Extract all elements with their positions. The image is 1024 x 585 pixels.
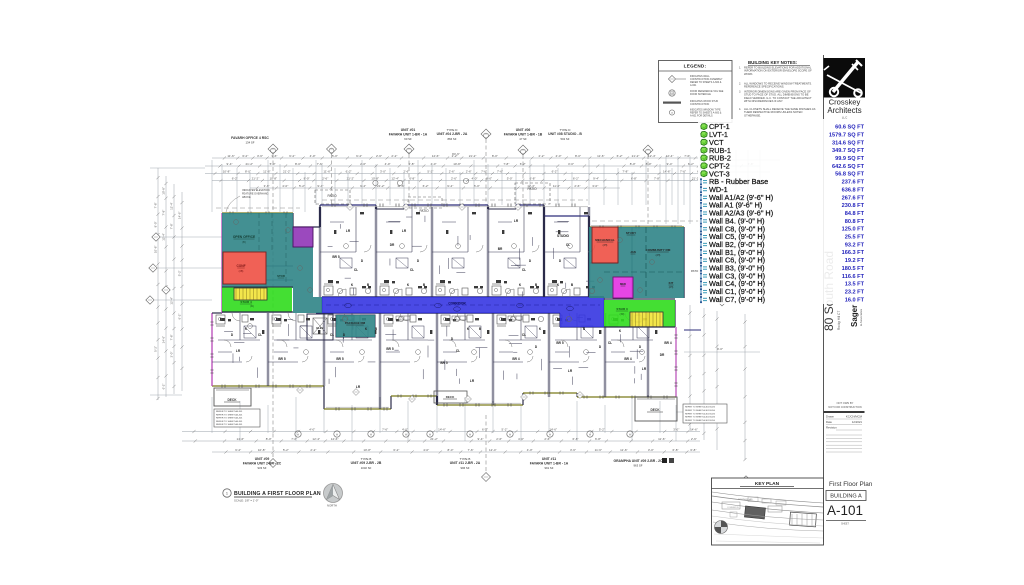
svg-text:3'-6": 3'-6" [257, 154, 263, 158]
svg-text:6'-8": 6'-8" [409, 162, 415, 166]
svg-text:FAVARH OFFICE 4 RSC: FAVARH OFFICE 4 RSC [231, 136, 269, 140]
svg-text:6'-2": 6'-2" [289, 154, 295, 158]
svg-text:6'-8": 6'-8" [572, 437, 578, 441]
svg-text:INFORMATION ON EXTERIOR ENVELO: INFORMATION ON EXTERIOR ENVELOPE SCOPE O… [744, 69, 812, 73]
svg-text:21'-2": 21'-2" [252, 176, 260, 180]
svg-text:7'-6": 7'-6" [684, 154, 690, 158]
svg-text:21'-2": 21'-2" [245, 162, 253, 166]
svg-text:4'-0": 4'-0" [423, 448, 429, 452]
svg-text:A-101: A-101 [827, 503, 863, 518]
svg-text:5'-2": 5'-2" [154, 346, 158, 352]
svg-text:SHEET: SHEET [841, 523, 850, 526]
svg-text:7'-6": 7'-6" [291, 437, 297, 441]
svg-text:3'-0": 3'-0" [170, 351, 174, 357]
svg-text:DECK: DECK [227, 398, 237, 402]
svg-text:7'-8": 7'-8" [503, 162, 509, 166]
svg-text:7'-8": 7'-8" [162, 210, 166, 216]
svg-text:8'-0": 8'-0" [295, 162, 301, 166]
svg-text:REFER TO SHEET A4-301: REFER TO SHEET A4-301 [216, 417, 243, 420]
svg-text:14'-6": 14'-6" [178, 212, 182, 220]
svg-text:CL: CL [410, 268, 414, 272]
svg-text:9'-4": 9'-4" [447, 184, 453, 188]
svg-text:5'-0": 5'-0" [332, 154, 338, 158]
svg-text:2'-2": 2'-2" [538, 154, 544, 158]
svg-text:47 SF: 47 SF [519, 137, 527, 141]
svg-text:NOT OWN BY: NOT OWN BY [837, 401, 854, 405]
svg-text:STAIR 3: STAIR 3 [616, 307, 628, 311]
svg-text:11'-6": 11'-6" [597, 154, 604, 158]
svg-text:MED: MED [620, 282, 626, 286]
svg-text:11'-6": 11'-6" [658, 437, 665, 441]
svg-text:CONSTRUCTION: CONSTRUCTION [690, 103, 710, 106]
svg-text:FAVARH UNIT 1-BR - 1A: FAVARH UNIT 1-BR - 1A [530, 462, 569, 466]
svg-text:FAVARH UNIT 2-BR - 2C: FAVARH UNIT 2-BR - 2C [243, 462, 282, 466]
svg-text:FAVARH UNIT 1-BR - 1B: FAVARH UNIT 1-BR - 1B [504, 133, 543, 137]
svg-text:84'-6": 84'-6" [452, 152, 460, 156]
svg-text:9'-4": 9'-4" [360, 184, 366, 188]
svg-text:12'-4": 12'-4" [170, 202, 174, 210]
svg-text:12'-4": 12'-4" [391, 176, 399, 180]
svg-text:UNIT #08 STUDIO - B: UNIT #08 STUDIO - B [548, 132, 582, 136]
svg-text:866 SF: 866 SF [447, 137, 456, 141]
svg-text:8'-0": 8'-0" [448, 448, 454, 452]
svg-text:2'-6": 2'-6" [574, 184, 580, 188]
svg-text:2'-6": 2'-6" [449, 169, 455, 173]
svg-text:237.6 FT: 237.6 FT [842, 180, 865, 186]
svg-text:UNIT #01: UNIT #01 [401, 128, 416, 132]
svg-text:93.2 FT: 93.2 FT [845, 242, 865, 248]
svg-text:LLC: LLC [842, 116, 848, 120]
svg-text:3'-0": 3'-0" [568, 162, 574, 166]
svg-text:8'-0": 8'-0" [266, 437, 272, 441]
svg-text:3'-0": 3'-0" [380, 169, 386, 173]
svg-text:56.8 SQ FT: 56.8 SQ FT [835, 172, 864, 178]
svg-text:2'-6": 2'-6" [403, 169, 409, 173]
svg-text:DR: DR [390, 243, 395, 247]
svg-text:7'-8": 7'-8" [654, 176, 660, 180]
svg-text:Architects: Architects [827, 106, 861, 115]
svg-text:60.6 SQ FT: 60.6 SQ FT [835, 125, 864, 131]
svg-text:BR 4: BR 4 [624, 357, 631, 361]
svg-text:UNIT #09: UNIT #09 [255, 457, 270, 461]
svg-text:UNIT #06: UNIT #06 [516, 128, 531, 132]
svg-text:DOOR SCHEDULE: DOOR SCHEDULE [690, 93, 711, 96]
svg-text:4'-0": 4'-0" [310, 154, 316, 158]
svg-text:OPEN OFFICE: OPEN OFFICE [233, 235, 256, 239]
svg-text:1.: 1. [739, 67, 741, 70]
svg-text:(3D): (3D) [620, 313, 625, 316]
svg-text:A-601 FOR DETAILS: A-601 FOR DETAILS [690, 115, 713, 118]
svg-text:4.: 4. [739, 108, 741, 111]
svg-text:LR: LR [402, 229, 407, 233]
svg-text:6'-2": 6'-2" [520, 162, 526, 166]
svg-text:Wall C7, (9'-0" H): Wall C7, (9'-0" H) [709, 295, 765, 304]
svg-text:STUDY: STUDY [626, 231, 636, 235]
svg-text:12'-4": 12'-4" [489, 448, 497, 452]
svg-text:180.5 FT: 180.5 FT [842, 266, 865, 272]
svg-text:5'-2": 5'-2" [599, 428, 605, 432]
svg-text:LR: LR [514, 219, 519, 223]
svg-text:6'-2": 6'-2" [482, 428, 488, 432]
svg-text:NOT FOR CONSTRUCTION: NOT FOR CONSTRUCTION [828, 405, 861, 409]
svg-text:REFER TO SHEET A-301 BLDG: REFER TO SHEET A-301 BLDG [685, 406, 716, 409]
svg-text:8'-0": 8'-0" [630, 162, 636, 166]
svg-text:OTHERWISE.: OTHERWISE. [744, 113, 761, 117]
svg-text:BR 5: BR 5 [440, 361, 447, 365]
svg-text:(2H): (2H) [656, 254, 661, 257]
svg-text:8'-0": 8'-0" [154, 221, 158, 227]
svg-text:A: A [509, 432, 511, 436]
svg-text:21'-2": 21'-2" [430, 437, 438, 441]
svg-text:UNIT #11: UNIT #11 [542, 457, 556, 461]
svg-text:6'-8": 6'-8" [530, 176, 536, 180]
svg-text:PATIO: PATIO [419, 209, 429, 213]
svg-text:2'-6": 2'-6" [360, 162, 366, 166]
svg-text:6'-2": 6'-2" [235, 448, 241, 452]
svg-text:21'-2": 21'-2" [469, 154, 477, 158]
svg-text:7'-6": 7'-6" [382, 428, 388, 432]
svg-text:7'-6": 7'-6" [468, 448, 474, 452]
svg-text:6'-2": 6'-2" [552, 169, 558, 173]
svg-text:A-601: A-601 [690, 84, 697, 87]
svg-text:KIT: KIT [669, 281, 674, 285]
svg-text:DR: DR [660, 353, 665, 357]
svg-text:2'-6": 2'-6" [376, 154, 382, 158]
svg-text:3'-6": 3'-6" [264, 184, 270, 188]
svg-text:8'-0": 8'-0" [646, 162, 652, 166]
svg-text:CL: CL [608, 341, 612, 345]
svg-text:21'-2": 21'-2" [283, 169, 291, 173]
svg-text:DECK: DECK [650, 408, 660, 412]
svg-text:996 SF: 996 SF [460, 466, 469, 470]
svg-text:5'-2": 5'-2" [502, 428, 508, 432]
svg-text:7'-8": 7'-8" [170, 334, 174, 340]
svg-text:COMMERCE: COMMERCE [727, 507, 740, 509]
svg-text:7'-8": 7'-8" [622, 169, 628, 173]
svg-text:267.6 FT: 267.6 FT [842, 195, 865, 201]
svg-text:CL: CL [522, 333, 526, 337]
svg-text:4'-0": 4'-0" [431, 162, 437, 166]
svg-text:(2B): (2B) [239, 270, 244, 273]
svg-text:5'-0": 5'-0" [507, 176, 513, 180]
svg-text:SOUTH ROAD: SOUTH ROAD [738, 498, 753, 501]
svg-text:99.9 SQ FT: 99.9 SQ FT [835, 156, 864, 162]
svg-text:10'-8": 10'-8" [223, 169, 231, 173]
svg-text:2'-6": 2'-6" [691, 437, 697, 441]
svg-text:LR: LR [356, 385, 361, 389]
svg-text:11'-6": 11'-6" [553, 184, 560, 188]
svg-text:6'-2": 6'-2" [617, 154, 623, 158]
svg-text:6'-8": 6'-8" [673, 448, 679, 452]
svg-text:BUILDING A: BUILDING A [830, 494, 862, 500]
svg-text:10'-8": 10'-8" [371, 176, 379, 180]
svg-text:BR 4: BR 4 [512, 357, 519, 361]
svg-text:CL: CL [456, 349, 460, 353]
svg-text:14'-6": 14'-6" [438, 428, 446, 432]
svg-text:14'-6": 14'-6" [162, 336, 166, 344]
svg-text:2'-6": 2'-6" [544, 437, 550, 441]
svg-text:963 SF: 963 SF [633, 464, 642, 468]
svg-text:LEGEND:: LEGEND: [684, 64, 707, 69]
svg-text:23.2 FT: 23.2 FT [845, 289, 865, 295]
svg-text:11'-6": 11'-6" [595, 448, 602, 452]
svg-text:4'-0": 4'-0" [282, 184, 288, 188]
svg-text:3'-0": 3'-0" [673, 428, 679, 432]
svg-text:642.6 SQ FT: 642.6 SQ FT [832, 164, 865, 170]
svg-text:PATIO: PATIO [327, 194, 337, 198]
svg-text:7'-8": 7'-8" [170, 223, 174, 229]
svg-text:(B): (B) [242, 241, 246, 244]
svg-text:(31): (31) [250, 306, 254, 308]
svg-text:8'-0": 8'-0" [492, 154, 498, 158]
svg-text:1: 1 [226, 492, 228, 496]
svg-text:Sager: Sager [850, 305, 859, 327]
svg-text:16.0 FT: 16.0 FT [845, 297, 865, 303]
svg-text:6'-2": 6'-2" [178, 313, 182, 319]
svg-text:11'-6": 11'-6" [263, 169, 270, 173]
svg-text:MECHANICAL: MECHANICAL [595, 238, 615, 242]
svg-text:7'-6": 7'-6" [680, 169, 686, 173]
svg-text:21'-2": 21'-2" [377, 184, 385, 188]
svg-text:12/2021: 12/2021 [852, 420, 863, 424]
svg-text:4'-0": 4'-0" [309, 428, 315, 432]
svg-text:JAN: JAN [630, 250, 636, 254]
svg-text:3.: 3. [739, 91, 741, 94]
svg-text:10'-8": 10'-8" [162, 187, 166, 195]
svg-text:BR 4: BR 4 [664, 341, 671, 345]
svg-text:REFERENCE SPECIFICATIONS.: REFERENCE SPECIFICATIONS. [744, 85, 785, 89]
svg-text:502 SF: 502 SF [560, 137, 569, 141]
svg-text:Drawn: Drawn [826, 415, 835, 419]
svg-text:Revision: Revision [826, 426, 837, 430]
svg-text:CONF: CONF [236, 264, 245, 268]
svg-text:12'-4": 12'-4" [648, 154, 656, 158]
svg-text:UNIT #11 2-BR - 2A: UNIT #11 2-BR - 2A [450, 461, 481, 465]
svg-text:REFER TO SHEET A4-301: REFER TO SHEET A4-301 [216, 420, 243, 423]
svg-text:4'-0": 4'-0" [472, 176, 478, 180]
svg-text:WITH DISCREPANCIES IF ANY.: WITH DISCREPANCIES IF ANY. [744, 99, 783, 103]
svg-text:11'-6": 11'-6" [227, 154, 234, 158]
svg-text:14'-6": 14'-6" [663, 169, 671, 173]
svg-text:12'-4": 12'-4" [312, 437, 320, 441]
svg-text:134 SF: 134 SF [245, 141, 254, 145]
svg-text:8'-0": 8'-0" [486, 176, 492, 180]
svg-text:LR: LR [568, 369, 573, 373]
svg-text:A: A [405, 432, 407, 436]
svg-text:REFER TO SHEET A4-301: REFER TO SHEET A4-301 [216, 410, 243, 413]
svg-text:(2H): (2H) [669, 287, 674, 289]
svg-text:2'-6": 2'-6" [466, 169, 472, 173]
svg-text:5'-2": 5'-2" [427, 169, 433, 173]
svg-text:BR 5: BR 5 [336, 357, 343, 361]
svg-text:2'-2": 2'-2" [310, 448, 316, 452]
svg-text:DECK: DECK [446, 395, 455, 399]
svg-text:3'-6": 3'-6" [271, 154, 277, 158]
svg-text:& Associates: & Associates [859, 308, 863, 326]
svg-text:UNIT #09 2-BR - 2B: UNIT #09 2-BR - 2B [351, 461, 382, 465]
svg-text:A: A [629, 432, 631, 436]
svg-text:A: A [370, 432, 372, 436]
svg-text:11'-6": 11'-6" [620, 448, 627, 452]
svg-text:11'-6": 11'-6" [397, 184, 404, 188]
svg-text:2'-6": 2'-6" [322, 176, 328, 180]
svg-text:1032 SF: 1032 SF [361, 466, 372, 470]
svg-text:933 SF: 933 SF [257, 466, 266, 470]
svg-text:14'-6": 14'-6" [331, 437, 339, 441]
svg-text:STOR: STOR [277, 274, 285, 278]
svg-text:10'-8": 10'-8" [258, 448, 266, 452]
svg-text:12'-4": 12'-4" [170, 297, 174, 305]
svg-text:6'-2": 6'-2" [688, 162, 694, 166]
svg-text:6'-8": 6'-8" [631, 176, 637, 180]
svg-text:3'-6": 3'-6" [570, 448, 576, 452]
svg-text:5'-2": 5'-2" [283, 448, 289, 452]
svg-text:STAIR 4: STAIR 4 [240, 300, 252, 304]
svg-text:6'-2": 6'-2" [346, 169, 352, 173]
svg-text:230.8 FT: 230.8 FT [842, 203, 865, 209]
svg-text:REFER TO SHEET A-301 BLDG: REFER TO SHEET A-301 BLDG [685, 412, 716, 415]
svg-text:LR: LR [642, 367, 647, 371]
svg-text:10'-8": 10'-8" [154, 245, 158, 253]
svg-text:KC/CN/MCM: KC/CN/MCM [846, 415, 863, 419]
svg-text:6'-2": 6'-2" [162, 383, 166, 389]
svg-text:10'-8": 10'-8" [453, 162, 461, 166]
svg-text:4'-0": 4'-0" [527, 448, 533, 452]
svg-text:NORTH: NORTH [327, 504, 337, 508]
svg-text:6'-8": 6'-8" [595, 437, 601, 441]
svg-text:84.8 FT: 84.8 FT [845, 211, 865, 217]
svg-text:A: A [429, 432, 431, 436]
svg-text:21'-2": 21'-2" [347, 176, 355, 180]
svg-text:ABOVE: ABOVE [242, 196, 251, 199]
svg-text:ELEV: ELEV [316, 326, 323, 330]
svg-text:12'-4": 12'-4" [666, 154, 674, 158]
svg-text:BR 5: BR 5 [332, 255, 339, 259]
svg-text:9'-4": 9'-4" [477, 437, 483, 441]
svg-text:First Floor Plan: First Floor Plan [829, 481, 873, 488]
svg-text:60 SF: 60 SF [404, 137, 412, 141]
svg-text:LR: LR [236, 349, 241, 353]
svg-text:BR 5: BR 5 [386, 347, 393, 351]
svg-text:1579.7 SQ FT: 1579.7 SQ FT [829, 132, 865, 138]
svg-text:6'-2": 6'-2" [393, 448, 399, 452]
svg-text:7'-8": 7'-8" [154, 202, 158, 208]
svg-text:4'-0": 4'-0" [556, 154, 562, 158]
svg-text:13.5 FT: 13.5 FT [845, 282, 865, 288]
svg-text:A: A [549, 432, 551, 436]
svg-text:9'-4": 9'-4" [667, 162, 673, 166]
svg-text:REFER TO SHEET A-301 BLDG: REFER TO SHEET A-301 BLDG [685, 419, 716, 422]
svg-text:SCALE: 1/8" = 1'-0": SCALE: 1/8" = 1'-0" [234, 499, 258, 503]
svg-text:9'-4": 9'-4" [226, 162, 232, 166]
svg-text:STUDIO: STUDIO [557, 234, 570, 238]
svg-text:3'-0": 3'-0" [592, 184, 598, 188]
svg-text:14'-6": 14'-6" [690, 428, 698, 432]
svg-text:2.: 2. [739, 83, 741, 86]
svg-text:125.0 FT: 125.0 FT [842, 227, 865, 233]
svg-text:19.2 FT: 19.2 FT [845, 258, 865, 264]
svg-text:6'-8": 6'-8" [690, 448, 696, 452]
svg-text:4'-0": 4'-0" [385, 162, 391, 166]
svg-text:6'-8": 6'-8" [409, 176, 415, 180]
svg-text:FAVARH UNIT 1-BR - 1A: FAVARH UNIT 1-BR - 1A [389, 133, 428, 137]
svg-text:UNIT #04 2-BR - 2A: UNIT #04 2-BR - 2A [437, 132, 468, 136]
svg-text:8'-0": 8'-0" [304, 176, 310, 180]
svg-text:3'-0": 3'-0" [648, 448, 654, 452]
svg-text:BR 5: BR 5 [278, 357, 285, 361]
svg-text:Date: Date [826, 420, 832, 424]
svg-text:8'-0": 8'-0" [575, 154, 581, 158]
svg-text:11'-6": 11'-6" [323, 169, 330, 173]
svg-text:A: A [297, 432, 299, 436]
svg-text:GRAMPHA UNIT #09 2-BR - 2C: GRAMPHA UNIT #09 2-BR - 2C [613, 459, 663, 463]
svg-text:PACKAGE RM: PACKAGE RM [345, 321, 366, 325]
svg-text:2'-6": 2'-6" [451, 176, 457, 180]
svg-text:BUILDING KEY NOTES:: BUILDING KEY NOTES: [748, 60, 798, 65]
svg-text:9'-0": 9'-0" [717, 347, 723, 351]
svg-text:25.5 FT: 25.5 FT [845, 235, 865, 241]
svg-text:2'-6": 2'-6" [496, 437, 502, 441]
svg-text:CORRIDOR: CORRIDOR [448, 302, 466, 306]
svg-text:COMMUNITY RM: COMMUNITY RM [646, 248, 671, 252]
svg-text:CL: CL [258, 333, 262, 337]
svg-text:314.6 SQ FT: 314.6 SQ FT [832, 140, 865, 146]
svg-text:(2H): (2H) [603, 244, 608, 247]
svg-text:Rocky Hill CT: Rocky Hill CT [837, 311, 841, 330]
svg-text:BR: BR [498, 247, 503, 251]
svg-text:LR: LR [470, 379, 475, 383]
svg-text:5'-0": 5'-0" [270, 162, 276, 166]
svg-text:991 SF: 991 SF [544, 466, 553, 470]
svg-text:80.8 FT: 80.8 FT [845, 219, 865, 225]
svg-text:LR: LR [346, 229, 351, 233]
svg-text:6'-2": 6'-2" [242, 154, 248, 158]
svg-text:10'-8": 10'-8" [363, 448, 371, 452]
svg-text:9'-4": 9'-4" [356, 154, 362, 158]
svg-text:REFER TO SHEET A4-301: REFER TO SHEET A4-301 [216, 413, 243, 416]
svg-text:21'-2": 21'-2" [632, 154, 640, 158]
svg-text:REFER TO SHEET A-301 BLDG: REFER TO SHEET A-301 BLDG [685, 409, 716, 412]
svg-text:BR 5: BR 5 [556, 341, 563, 345]
svg-text:CL: CL [522, 268, 526, 272]
svg-text:6'-2": 6'-2" [423, 184, 429, 188]
svg-text:REFER TO SHEET A4-301: REFER TO SHEET A4-301 [216, 423, 243, 426]
svg-text:A: A [336, 432, 338, 436]
svg-text:CL: CL [330, 333, 334, 337]
svg-text:5'-2": 5'-2" [178, 270, 182, 276]
svg-text:A: A [589, 432, 591, 436]
svg-text:PATIO: PATIO [527, 187, 537, 191]
svg-text:WORK.: WORK. [744, 72, 753, 76]
svg-text:349.7 SQ FT: 349.7 SQ FT [832, 148, 865, 154]
svg-text:2'-2": 2'-2" [391, 154, 397, 158]
svg-text:BUILDING A FIRST FLOOR PLAN: BUILDING A FIRST FLOOR PLAN [234, 491, 321, 497]
svg-text:9'-4": 9'-4" [593, 176, 599, 180]
svg-text:REFER TO SHEET A-301 BLDG: REFER TO SHEET A-301 BLDG [685, 416, 716, 419]
svg-text:6'-2": 6'-2" [573, 176, 579, 180]
svg-text:CL: CL [354, 268, 358, 272]
svg-text:116.6 FT: 116.6 FT [842, 274, 865, 280]
svg-text:166.3 FT: 166.3 FT [842, 250, 865, 256]
svg-text:14'-6": 14'-6" [432, 154, 440, 158]
svg-text:9'-4": 9'-4" [317, 184, 323, 188]
svg-text:5'-0": 5'-0" [474, 184, 480, 188]
svg-text:5'-2": 5'-2" [299, 184, 305, 188]
svg-text:14'-6": 14'-6" [237, 437, 245, 441]
svg-text:636.8 FT: 636.8 FT [842, 187, 865, 193]
svg-text:A: A [469, 432, 471, 436]
